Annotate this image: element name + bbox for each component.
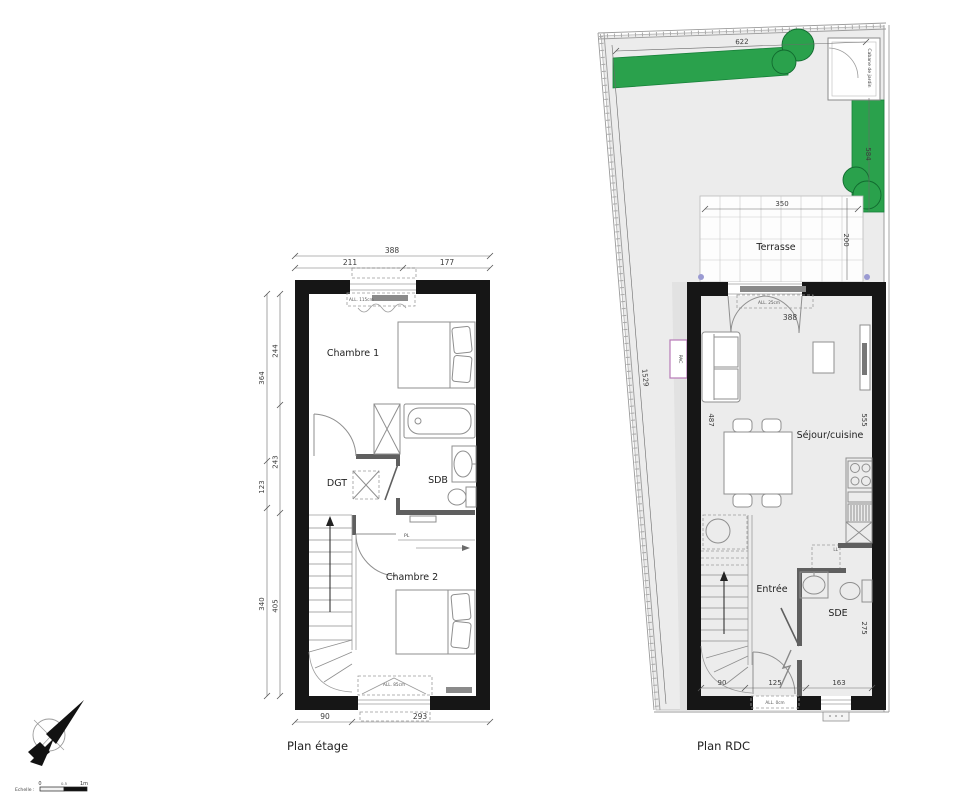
- dim-kitchen-wall: 555: [860, 413, 868, 426]
- window-sill-label-rdc: ALL. 25cm: [758, 300, 780, 305]
- sdb-toilet: [448, 487, 476, 507]
- room-label-sde: SDE: [828, 608, 847, 619]
- north-compass-icon: [28, 700, 84, 766]
- door-chambre1: [314, 414, 356, 456]
- room-label-chambre1: Chambre 1: [327, 348, 379, 359]
- etage-window-bottom-opening: [358, 696, 430, 710]
- bathtub: [404, 404, 475, 438]
- coffee-table: [813, 342, 834, 373]
- dim-left-364: 364: [258, 371, 266, 385]
- etage-window-top: ALL. 115cm: [347, 268, 416, 312]
- stairs-etage: [309, 515, 356, 692]
- dim-bottom-125: 125: [768, 679, 781, 687]
- dim-sde-depth: 275: [860, 621, 868, 634]
- floorplan-page: Cabane de jardin 622 1529 584 Terrasse 3…: [0, 0, 953, 800]
- rdc-window-bottom-opening: [821, 696, 851, 710]
- dim-top-right: 177: [440, 258, 455, 267]
- dim-bottom-293: 293: [413, 712, 428, 721]
- terrasse: Terrasse 350 200: [698, 196, 870, 282]
- etage-plan: ALL. 115cm Chambre 1: [258, 246, 493, 753]
- rdc-title: Plan RDC: [697, 739, 750, 753]
- dim-garden-top: 622: [735, 38, 749, 46]
- dining-table: [724, 419, 792, 507]
- dim-bottom-90: 90: [718, 679, 727, 687]
- etage-top-dimensions: 388 211 177: [292, 246, 493, 271]
- scale-tick-1m: 1m: [80, 781, 88, 787]
- dim-top-left: 211: [343, 258, 358, 267]
- dim-top-total: 388: [385, 246, 400, 255]
- closet-pl: PL: [398, 533, 475, 551]
- dim-left-244: 244: [272, 344, 280, 358]
- shed-label: Cabane de jardin: [866, 48, 872, 87]
- window-sill-label-etage-bottom: ALL. 85cm: [383, 682, 405, 687]
- scale-bar: Echelle : 0 0.5 1m: [15, 781, 88, 793]
- radiator-chambre2: [446, 687, 472, 693]
- legend: Echelle : 0 0.5 1m: [15, 700, 88, 793]
- scale-label: Echelle :: [15, 787, 35, 793]
- dim-left-243: 243: [272, 455, 280, 468]
- bed-chambre1: [398, 322, 475, 388]
- room-label-chambre2: Chambre 2: [386, 572, 438, 583]
- dim-terrasse-depth: 200: [842, 233, 850, 246]
- dim-hedge-right: 584: [864, 147, 872, 161]
- garden-shed: Cabane de jardin: [828, 38, 880, 100]
- etage-window-top-opening: [350, 280, 416, 294]
- etage-bottom-dimensions: 90 293: [292, 712, 493, 725]
- skylight: [353, 471, 379, 499]
- scale-tick-mid: 0.5: [61, 781, 68, 786]
- room-label-sejour: Séjour/cuisine: [797, 430, 864, 441]
- door-chambre2: [356, 534, 396, 576]
- scale-tick-0: 0: [38, 781, 41, 787]
- drain-dot-right: [864, 274, 870, 280]
- dim-bottom-90-etage: 90: [320, 712, 330, 721]
- ll-label: LL: [833, 547, 838, 552]
- stair-up-arrow-etage: [326, 516, 334, 526]
- sdb-washbasin: [452, 446, 476, 482]
- dim-bottom-163: 163: [832, 679, 845, 687]
- dim-left-405: 405: [272, 599, 280, 612]
- heat-pump: PAC: [670, 340, 687, 378]
- dim-terrasse-width: 350: [775, 200, 788, 208]
- bed-chambre2: [396, 590, 475, 654]
- room-label-dgt: DGT: [327, 478, 347, 489]
- pac-label: PAC: [677, 355, 683, 364]
- tv-unit: [860, 325, 870, 390]
- room-label-terrasse: Terrasse: [755, 242, 795, 253]
- dim-left-123: 123: [258, 480, 266, 493]
- drain-dot-left: [698, 274, 704, 280]
- window-sill-label-etage-top: ALL. 115cm: [349, 297, 374, 302]
- closet-label: PL: [404, 533, 410, 539]
- room-label-entree: Entrée: [756, 584, 787, 595]
- shower-etage: [374, 404, 400, 454]
- etage-partitions: [352, 454, 475, 535]
- etage-title: Plan étage: [287, 739, 348, 753]
- etage-left-dimensions: 364 123 340 244 243 405: [258, 291, 283, 699]
- dim-sejour-width: 388: [783, 313, 798, 322]
- room-label-sdb: SDB: [428, 475, 448, 486]
- dim-left-340: 340: [258, 597, 266, 610]
- door-sill-label: ALL. 0cm: [765, 700, 784, 705]
- floorplan-drawing: Cabane de jardin 622 1529 584 Terrasse 3…: [0, 0, 953, 800]
- dim-sejour-depth: 487: [707, 413, 715, 426]
- sofa: [702, 332, 740, 402]
